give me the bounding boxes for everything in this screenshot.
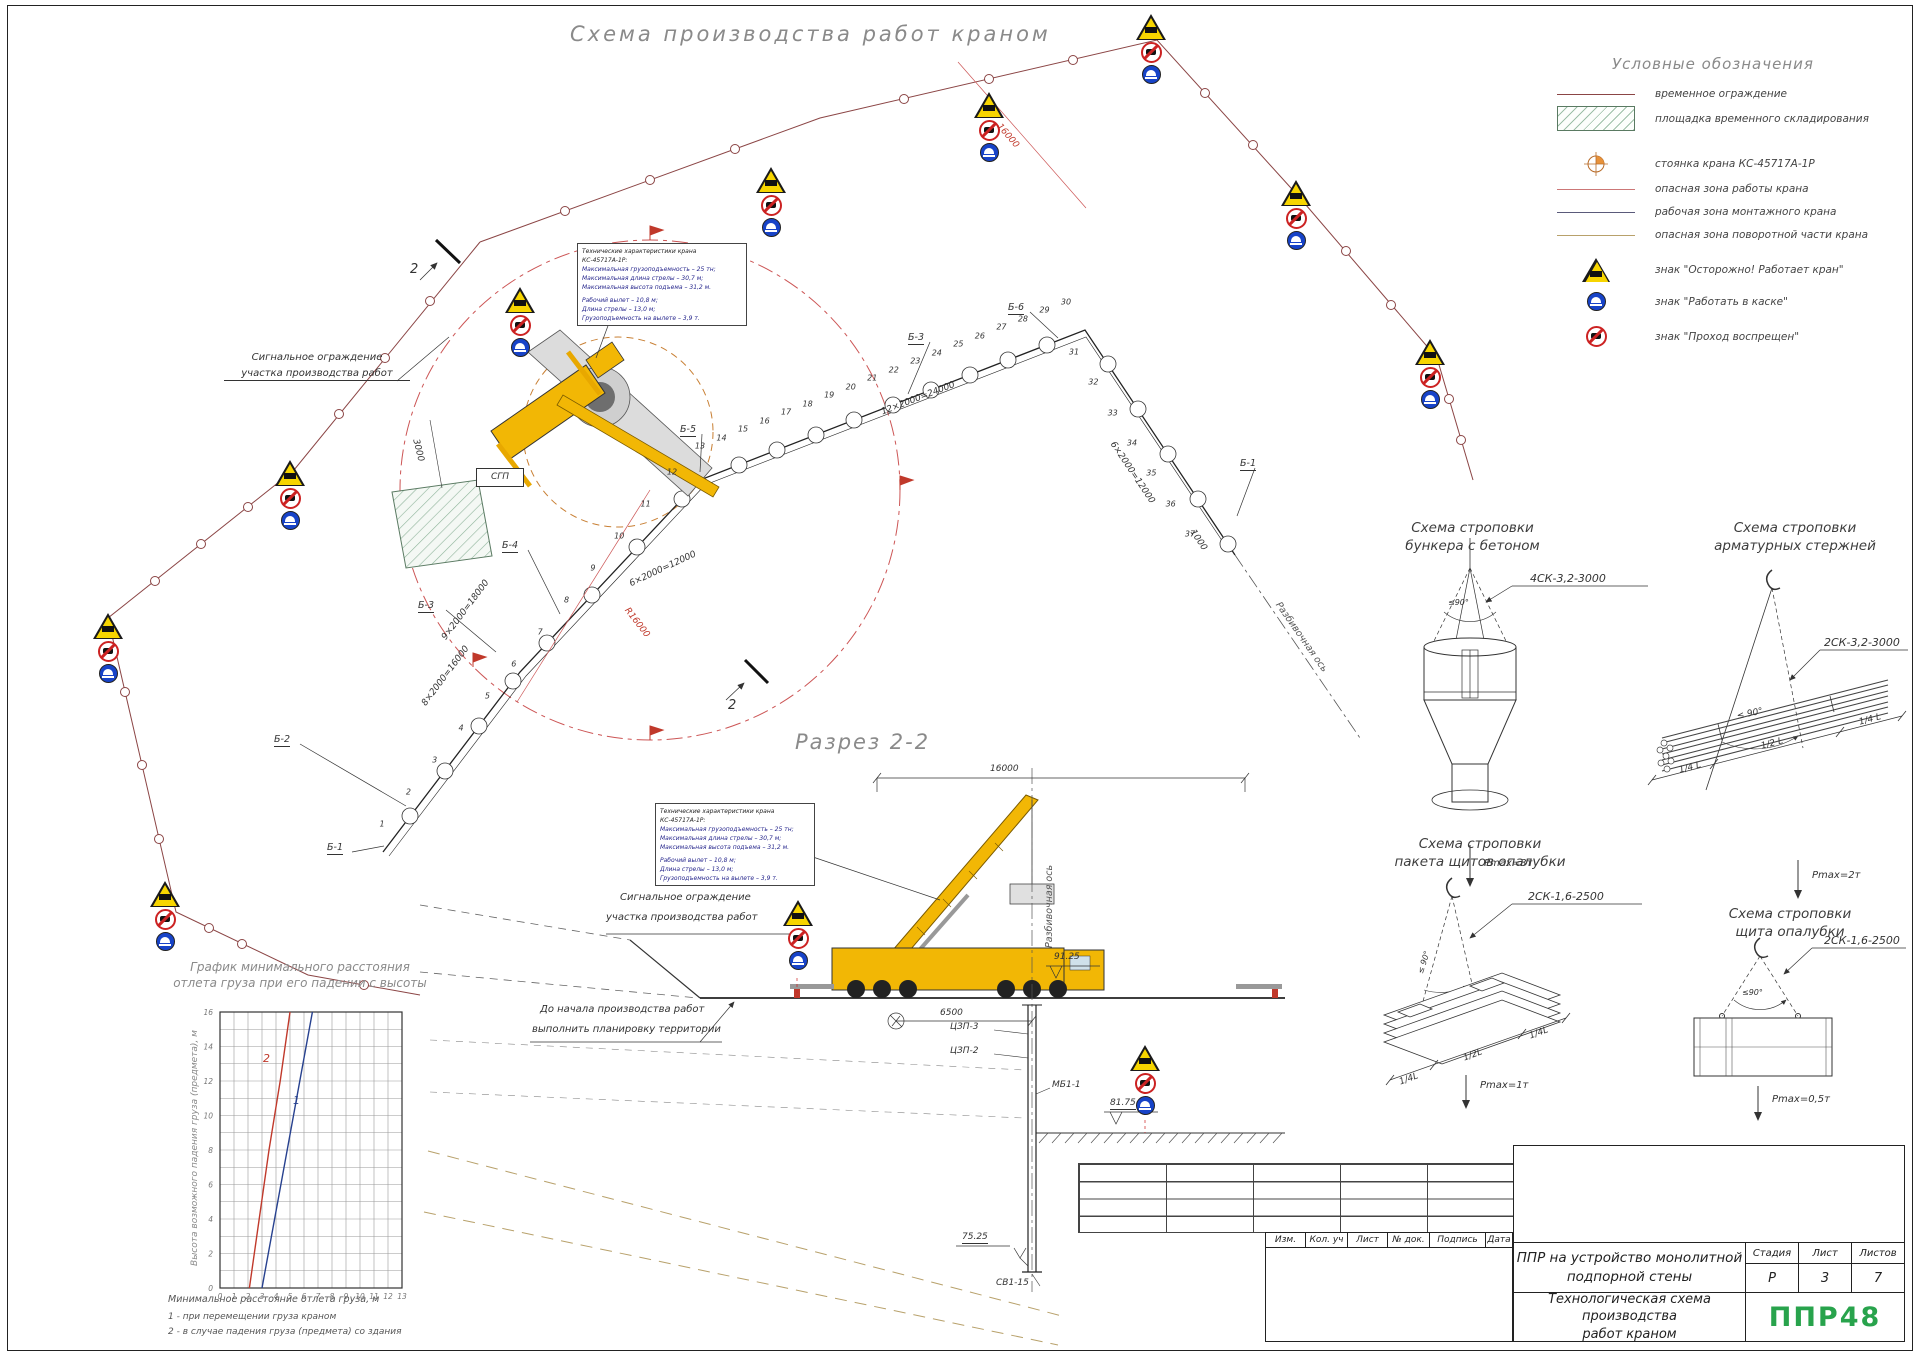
section-dim-6500: 6500 bbox=[940, 1008, 963, 1018]
rig1-title-2: бункера с бетоном bbox=[1380, 538, 1565, 554]
sheets-value: 7 bbox=[1852, 1264, 1904, 1293]
wall-label-czp3: ЦЗП-3 bbox=[950, 1022, 979, 1032]
graph-ylabel: Высота возможного падения груза (предмет… bbox=[190, 1010, 200, 1286]
sheet-header: Лист bbox=[1799, 1243, 1852, 1263]
razb-axis-section: Разбивочная ось bbox=[1044, 865, 1055, 948]
legend-item-workzone: рабочая зона монтажного крана bbox=[1555, 206, 1836, 218]
helmet-sign-icon bbox=[980, 143, 999, 162]
slew-zone-line-icon bbox=[1555, 235, 1637, 236]
helmet-sign-icon bbox=[1555, 292, 1637, 311]
sign-cluster bbox=[1413, 339, 1447, 409]
crane-warning-sign-icon bbox=[1555, 258, 1637, 282]
stage-value: Р bbox=[1746, 1264, 1799, 1293]
svg-text:10: 10 bbox=[203, 1112, 213, 1121]
titleblock-revision-grid bbox=[1078, 1163, 1514, 1233]
titleblock-header-row: Изм. Кол. уч Лист № док. Подпись Дата bbox=[1265, 1232, 1513, 1248]
helmet-sign-icon bbox=[281, 511, 300, 530]
titleblock-left-cell bbox=[1265, 1247, 1513, 1342]
temp-fence-line-icon bbox=[1555, 94, 1637, 95]
sheets-header: Листов bbox=[1852, 1243, 1904, 1263]
tech-specs-box-section: Технические характеристики крана КС-4571… bbox=[655, 803, 815, 886]
legend-item-helmetsign: знак "Работать в каске" bbox=[1555, 292, 1788, 311]
section-title: Разрез 2-2 bbox=[795, 730, 930, 754]
graph-note-1: 1 - при перемещении груза краном bbox=[168, 1312, 336, 1322]
section-fence-label-2: участка производства работ bbox=[606, 912, 757, 923]
no-entry-sign-icon bbox=[1135, 1073, 1156, 1094]
col-izm: Изм. bbox=[1266, 1233, 1306, 1247]
no-entry-sign-icon bbox=[788, 928, 809, 949]
crane-parking-icon bbox=[1555, 150, 1637, 178]
svg-text:6: 6 bbox=[208, 1181, 213, 1190]
stage-header: Стадия bbox=[1746, 1243, 1799, 1263]
project-name-2: подпорной стены bbox=[1567, 1268, 1692, 1286]
wall-label-sv115: СВ1-15 bbox=[996, 1278, 1029, 1288]
rigging-s2 bbox=[1648, 570, 1908, 898]
drawing-sheet: 0123456789101112130246810121416 Схема пр… bbox=[0, 0, 1920, 1357]
crane-warning-sign-icon bbox=[756, 167, 786, 193]
section-dim-16000: 16000 bbox=[990, 764, 1019, 774]
axis-label-b4: Б-4 bbox=[502, 540, 518, 553]
helmet-sign-icon bbox=[1421, 390, 1440, 409]
rig4-pmax: Pmax=0,5т bbox=[1772, 1094, 1830, 1105]
graph-note-2: 2 - в случае падения груза (предмета) со… bbox=[168, 1327, 402, 1337]
col-podp: Подпись bbox=[1430, 1233, 1486, 1247]
helmet-sign-icon bbox=[511, 338, 530, 357]
project-name: ППР на устройство монолитной bbox=[1517, 1249, 1742, 1267]
sign-cluster bbox=[781, 900, 815, 970]
svg-text:12: 12 bbox=[203, 1077, 213, 1086]
axis-label-b2: Б-2 bbox=[274, 734, 290, 747]
rig4-title: Схема строповки bbox=[1690, 906, 1890, 922]
helmet-sign-icon bbox=[762, 218, 781, 237]
crane-warning-sign-icon bbox=[1136, 14, 1166, 40]
danger-zone-line-icon bbox=[1555, 189, 1637, 190]
crane-warning-sign-icon bbox=[275, 460, 305, 486]
sign-cluster bbox=[1134, 14, 1168, 84]
sheet-value: 3 bbox=[1799, 1264, 1852, 1293]
svg-text:0: 0 bbox=[208, 1284, 213, 1293]
doc-title: Технологическая схема производства bbox=[1514, 1291, 1745, 1326]
rig3-sling: 2СК-1,6-2500 bbox=[1528, 890, 1604, 903]
titleblock-right-top-cell bbox=[1513, 1145, 1905, 1243]
svg-text:2: 2 bbox=[208, 1250, 213, 1259]
section-fence-label: Сигнальное ограждение bbox=[620, 892, 751, 903]
crane-warning-sign-icon bbox=[1415, 339, 1445, 365]
helmet-sign-icon bbox=[156, 932, 175, 951]
graph-curve1-label: 1 bbox=[293, 1094, 300, 1107]
sign-cluster bbox=[1279, 180, 1313, 250]
svg-text:4: 4 bbox=[208, 1215, 213, 1224]
helmet-sign-icon bbox=[789, 951, 808, 970]
legend-item-slewzone: опасная зона поворотной части крана bbox=[1555, 229, 1868, 241]
titleblock-project-cell: ППР на устройство монолитной подпорной с… bbox=[1513, 1242, 1746, 1293]
no-entry-sign-icon bbox=[98, 641, 119, 662]
page-title: Схема производства работ краном bbox=[570, 22, 970, 46]
no-entry-sign-icon bbox=[510, 315, 531, 336]
col-kol: Кол. уч bbox=[1306, 1233, 1348, 1247]
helmet-sign-icon bbox=[1142, 65, 1161, 84]
sgp-label: СГП bbox=[476, 468, 524, 487]
wall-axis bbox=[383, 330, 1235, 852]
section-mark-label-2: 2 bbox=[728, 698, 736, 713]
sign-cluster bbox=[91, 613, 125, 683]
wall-label-czp2: ЦЗП-2 bbox=[950, 1046, 979, 1056]
rig2-title-2: арматурных стержней bbox=[1690, 538, 1900, 554]
helmet-sign-icon bbox=[1136, 1096, 1155, 1115]
crane-warning-sign-icon bbox=[783, 900, 813, 926]
crane-warning-sign-icon bbox=[1130, 1045, 1160, 1071]
titleblock-stage-grid: Стадия Лист Листов Р 3 7 bbox=[1745, 1242, 1905, 1293]
layout-axis-plan bbox=[1235, 555, 1360, 738]
graph-title: График минимального расстояния bbox=[170, 960, 430, 974]
elev-7525: 75.25 bbox=[962, 1232, 988, 1244]
rig4-sling: 2СК-1,6-2500 bbox=[1824, 934, 1900, 947]
axis-label-b3b: Б-3 bbox=[908, 332, 924, 345]
no-entry-sign-icon bbox=[1141, 42, 1162, 63]
crane-section bbox=[790, 795, 1282, 998]
legend-item-danger: опасная зона работы крана bbox=[1555, 183, 1809, 195]
legend-item-fence: временное ограждение bbox=[1555, 88, 1787, 100]
axis-label-b1: Б-1 bbox=[327, 842, 343, 855]
svg-text:13: 13 bbox=[397, 1292, 407, 1301]
signal-fence-label-2: участка производства работ bbox=[224, 368, 410, 381]
sign-cluster bbox=[148, 881, 182, 951]
titleblock-logo-cell: ППР48 bbox=[1745, 1292, 1905, 1342]
no-entry-sign-icon bbox=[761, 195, 782, 216]
r16000-radius bbox=[517, 490, 650, 702]
rig2-title: Схема строповки bbox=[1690, 520, 1900, 536]
wall-label-mb11: МБ1-1 bbox=[1052, 1080, 1081, 1090]
crane-warning-sign-icon bbox=[1281, 180, 1311, 206]
rig2-sling: 2СК-3,2-3000 bbox=[1824, 636, 1900, 649]
legend-item-noentrysign: знак "Проход воспрещен" bbox=[1555, 326, 1799, 347]
sign-cluster bbox=[754, 167, 788, 237]
helmet-sign-icon bbox=[99, 664, 118, 683]
company-logo: ППР48 bbox=[1746, 1293, 1904, 1341]
sign-cluster bbox=[972, 92, 1006, 162]
no-entry-sign-icon bbox=[979, 120, 1000, 141]
titleblock-doc-cell: Технологическая схема производства работ… bbox=[1513, 1292, 1746, 1342]
crane-warning-sign-icon bbox=[93, 613, 123, 639]
svg-text:12: 12 bbox=[383, 1292, 393, 1301]
svg-text:16: 16 bbox=[203, 1008, 213, 1017]
crane-warning-sign-icon bbox=[505, 287, 535, 313]
no-entry-sign-icon bbox=[155, 909, 176, 930]
rig3-title: Схема строповки bbox=[1380, 836, 1580, 852]
storage-area bbox=[392, 480, 492, 568]
helmet-sign-icon bbox=[1287, 231, 1306, 250]
col-list: Лист bbox=[1348, 1233, 1388, 1247]
rig4-angle: ≤90° bbox=[1742, 988, 1763, 997]
rig1-title: Схема строповки bbox=[1380, 520, 1565, 536]
storage-hatch-icon bbox=[1555, 106, 1637, 131]
graph-title-2: отлета груза при его падении с высоты bbox=[170, 976, 430, 990]
col-data: Дата bbox=[1486, 1233, 1512, 1247]
planning-note-2: выполнить планировку территории bbox=[532, 1024, 721, 1035]
svg-text:14: 14 bbox=[203, 1043, 213, 1052]
crane-warning-sign-icon bbox=[974, 92, 1004, 118]
sign-cluster bbox=[273, 460, 307, 530]
elev-9125: 91.25 bbox=[1054, 952, 1080, 962]
graph-xlabel: Минимальное расстояние отлета груза, м bbox=[168, 1294, 379, 1305]
col-doc: № док. bbox=[1388, 1233, 1430, 1247]
rigging-s3 bbox=[1384, 878, 1642, 1108]
legend-item-parking: стоянка крана КС-45717А-1Р bbox=[1555, 150, 1815, 178]
no-entry-sign-icon bbox=[1420, 367, 1441, 388]
rig2-pmax: Pmax=2т bbox=[1812, 870, 1860, 881]
rig3-title-2: пакета щитов опалубки bbox=[1380, 854, 1580, 870]
rigging-s4 bbox=[1694, 938, 1906, 1120]
crane-warning-sign-icon bbox=[150, 881, 180, 907]
section-mark-label: 2 bbox=[410, 262, 418, 277]
rig1-angle: ≤90° bbox=[1448, 598, 1469, 607]
axis-label-b5: Б-5 bbox=[680, 424, 696, 437]
legend-item-warnsign: знак "Осторожно! Работает кран" bbox=[1555, 258, 1844, 282]
sign-cluster bbox=[503, 287, 537, 357]
rigging-s1 bbox=[1424, 538, 1648, 886]
planning-note: До начала производства работ bbox=[540, 1004, 704, 1015]
work-zone-line-icon bbox=[1555, 212, 1637, 213]
svg-text:8: 8 bbox=[208, 1146, 213, 1155]
doc-title-2: работ краном bbox=[1582, 1326, 1676, 1344]
rig1-sling: 4СК-3,2-3000 bbox=[1530, 572, 1606, 585]
legend-item-storage: площадка временного складирования bbox=[1555, 106, 1869, 131]
sign-cluster bbox=[1128, 1045, 1162, 1115]
signal-fence-label: Сигнальное ограждение bbox=[232, 352, 402, 363]
axis-label-b3: Б-3 bbox=[418, 600, 434, 613]
legend-title: Условные обозначения bbox=[1612, 55, 1814, 73]
rig3-pmax: Pmax=1т bbox=[1480, 1080, 1528, 1091]
axis-label-b1b: Б-1 bbox=[1240, 458, 1256, 471]
no-entry-sign-icon bbox=[280, 488, 301, 509]
no-entry-sign-icon bbox=[1286, 208, 1307, 229]
graph-curve2-label: 2 bbox=[263, 1052, 270, 1065]
tech-specs-box-plan: Технические характеристики крана КС-4571… bbox=[577, 243, 747, 326]
no-entry-sign-icon bbox=[1555, 326, 1637, 347]
axis-label-b6: Б-6 bbox=[1008, 302, 1024, 315]
